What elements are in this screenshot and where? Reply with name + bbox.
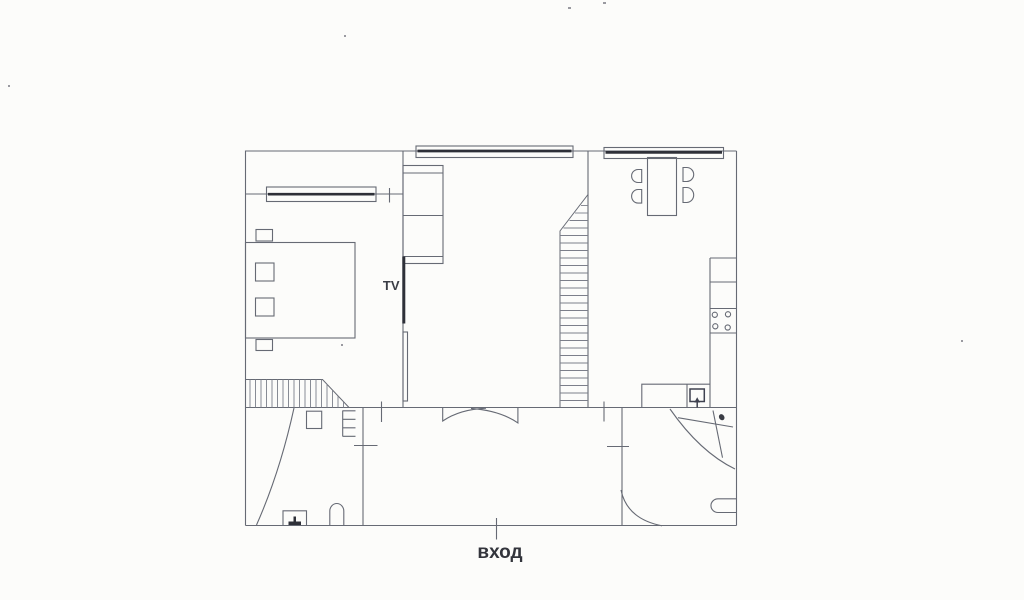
svg-text:TV: TV xyxy=(383,278,400,293)
svg-text:вход: вход xyxy=(477,542,522,563)
